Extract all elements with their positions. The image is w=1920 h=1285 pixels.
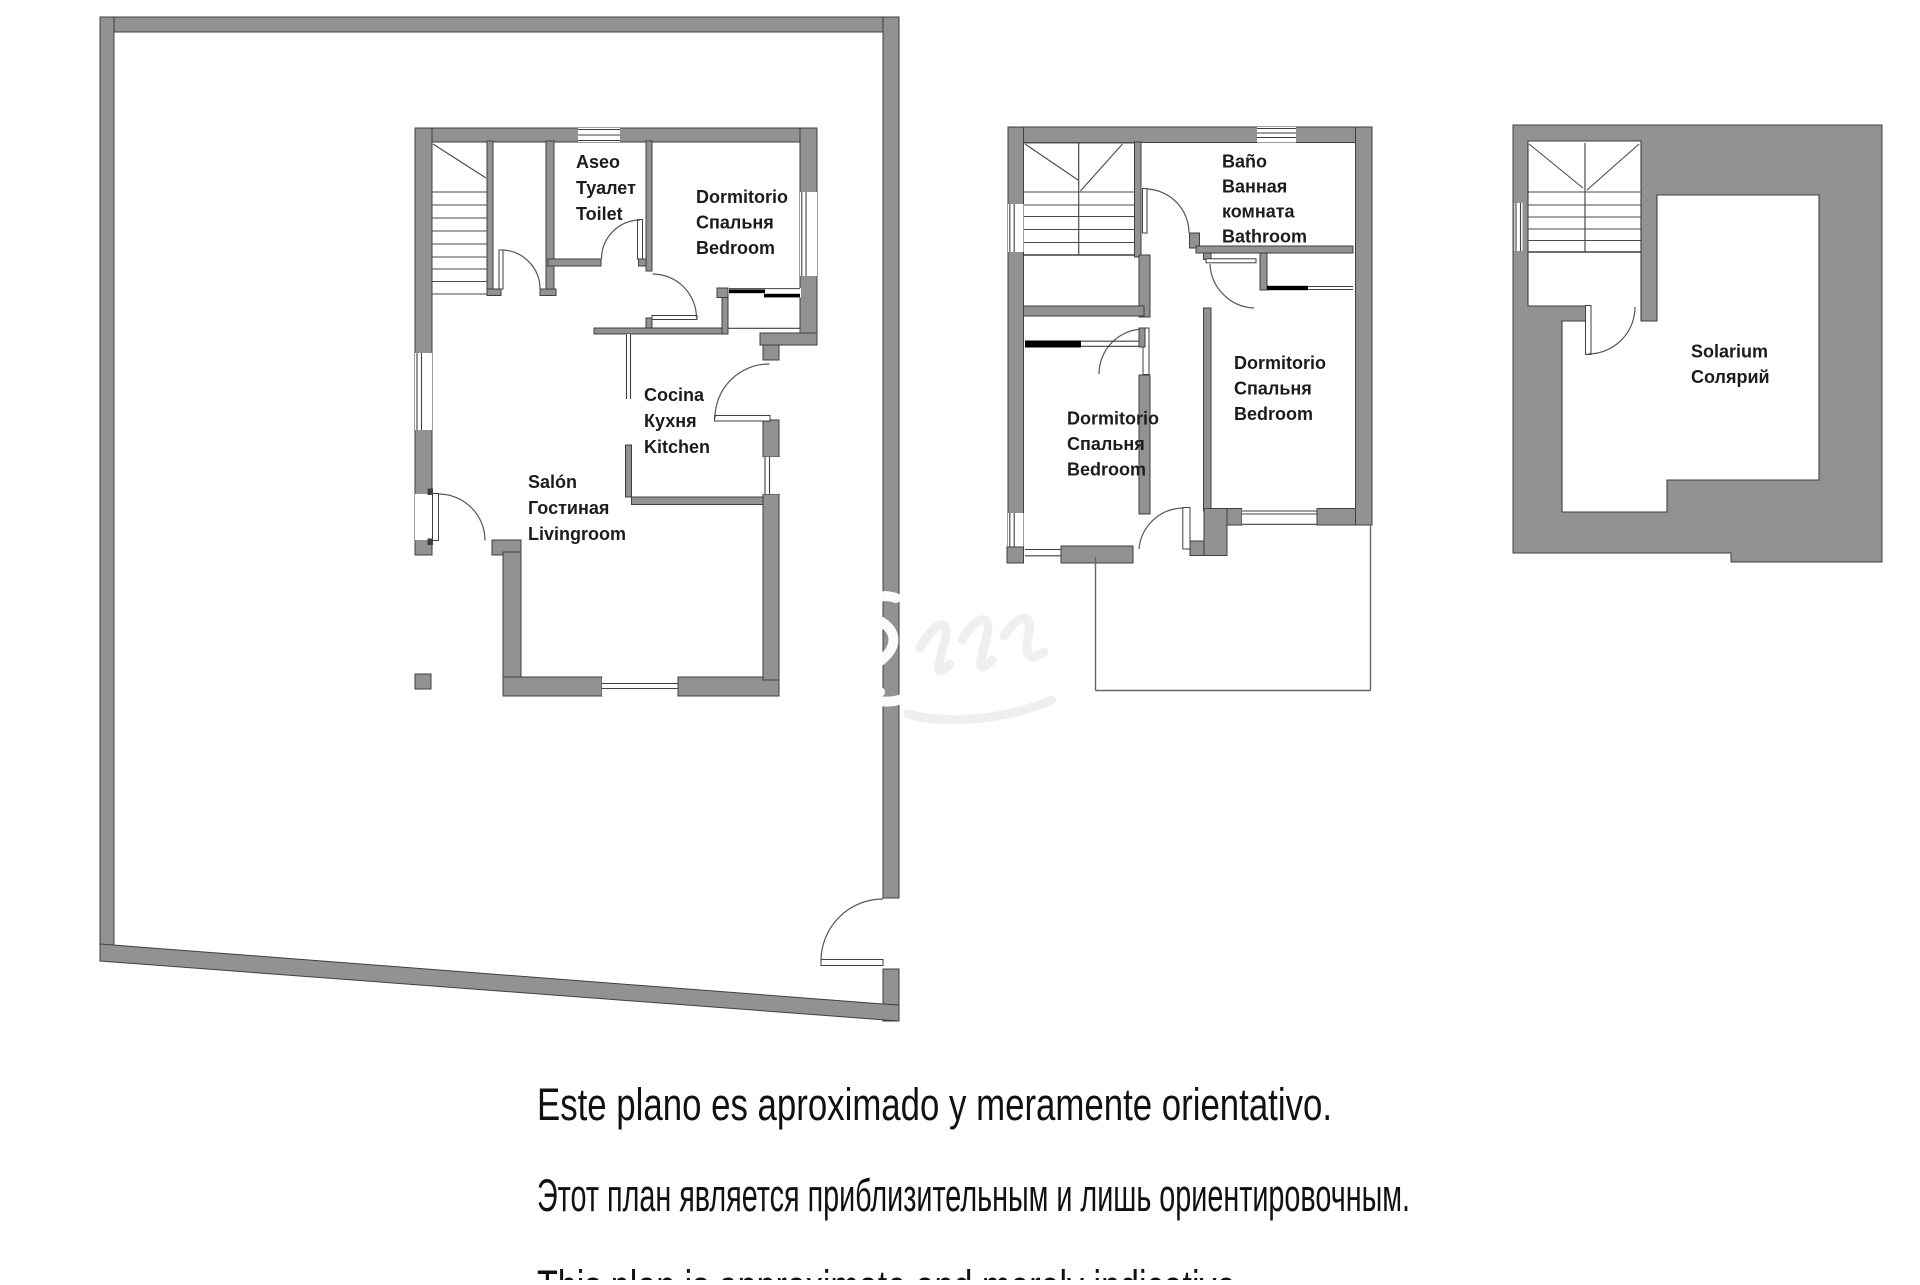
svg-text:Dormitorio: Dormitorio bbox=[696, 187, 788, 207]
svg-text:комната: комната bbox=[1222, 202, 1296, 222]
svg-text:Туалет: Туалет bbox=[576, 178, 636, 198]
svg-text:Dormitorio: Dormitorio bbox=[1067, 409, 1159, 429]
svg-text:Kitchen: Kitchen bbox=[644, 437, 710, 457]
svg-text:Спальня: Спальня bbox=[696, 213, 774, 233]
svg-text:Этот план является приблизител: Этот план является приблизительным и лиш… bbox=[537, 1170, 1410, 1221]
svg-text:Bathroom: Bathroom bbox=[1222, 227, 1307, 247]
svg-text:Bedroom: Bedroom bbox=[696, 238, 775, 258]
svg-text:Bedroom: Bedroom bbox=[1234, 404, 1313, 424]
svg-text:Солярий: Солярий bbox=[1691, 367, 1770, 387]
svg-text:Кухня: Кухня bbox=[644, 411, 697, 431]
svg-text:Toilet: Toilet bbox=[576, 204, 623, 224]
svg-text:Спальня: Спальня bbox=[1067, 434, 1145, 454]
svg-text:This plan is approximate and m: This plan is approximate and merely indi… bbox=[537, 1261, 1245, 1280]
svg-text:Aseo: Aseo bbox=[576, 152, 620, 172]
svg-text:Cocina: Cocina bbox=[644, 385, 705, 405]
svg-text:Bedroom: Bedroom bbox=[1067, 460, 1146, 480]
svg-text:Спальня: Спальня bbox=[1234, 379, 1312, 399]
svg-text:Baño: Baño bbox=[1222, 152, 1267, 172]
svg-text:Ванная: Ванная bbox=[1222, 177, 1287, 197]
svg-text:Гостиная: Гостиная bbox=[528, 498, 609, 518]
svg-text:Livingroom: Livingroom bbox=[528, 524, 626, 544]
svg-text:Solarium: Solarium bbox=[1691, 342, 1768, 362]
svg-text:Este plano es aproximado y mer: Este plano es aproximado y meramente ori… bbox=[537, 1079, 1332, 1130]
svg-text:Salón: Salón bbox=[528, 472, 577, 492]
svg-text:Dormitorio: Dormitorio bbox=[1234, 353, 1326, 373]
